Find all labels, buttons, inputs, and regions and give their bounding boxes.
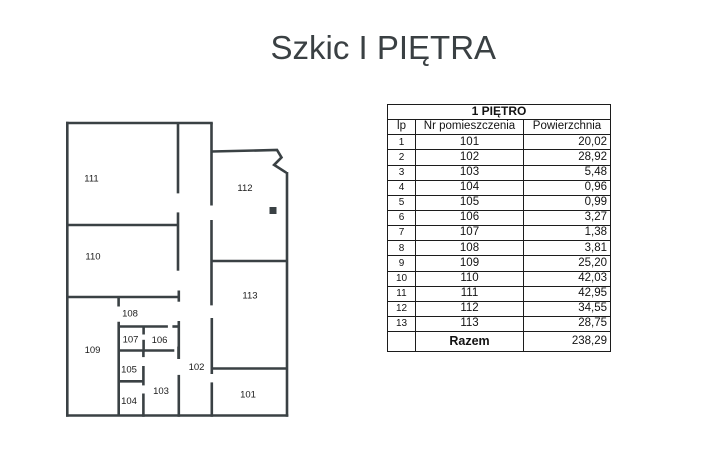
svg-text:112: 112 bbox=[237, 183, 252, 194]
svg-text:109: 109 bbox=[85, 345, 101, 356]
svg-text:111: 111 bbox=[84, 173, 98, 184]
svg-text:113: 113 bbox=[242, 290, 257, 301]
svg-text:102: 102 bbox=[189, 362, 205, 373]
svg-text:101: 101 bbox=[240, 389, 256, 400]
svg-text:108: 108 bbox=[122, 308, 138, 319]
svg-text:105: 105 bbox=[121, 364, 137, 375]
svg-text:106: 106 bbox=[152, 335, 168, 346]
svg-text:103: 103 bbox=[153, 386, 169, 397]
svg-text:110: 110 bbox=[85, 251, 100, 262]
svg-text:107: 107 bbox=[123, 334, 139, 345]
svg-text:104: 104 bbox=[121, 396, 137, 407]
